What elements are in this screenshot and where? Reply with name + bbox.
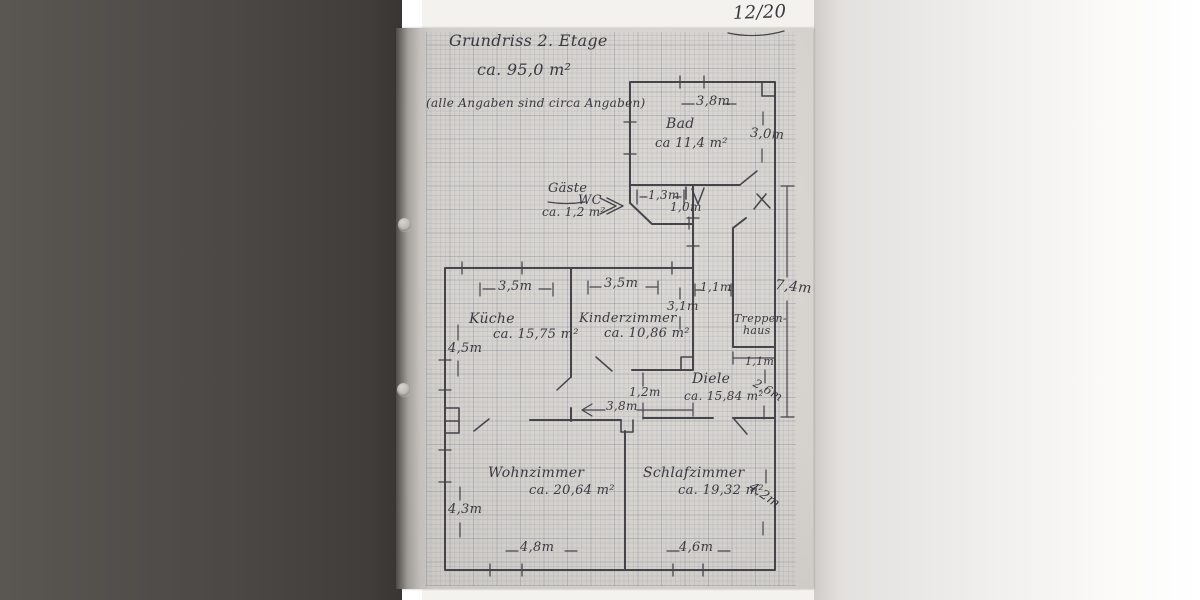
dim-diele-height: 1,2m	[629, 386, 661, 399]
photographed-floor-plan: 12/20 Grundriss 2. Etage ca. 95,0 m² (al…	[0, 0, 1200, 600]
dim-wohnzimmer-height: 4,3m	[448, 503, 482, 517]
plan-title: Grundriss 2. Etage	[449, 33, 608, 50]
room-area-kueche: ca. 15,75 m²	[493, 328, 579, 342]
room-area-kinderzimmer: ca. 10,86 m²	[604, 327, 690, 341]
room-label-schlafzimmer: Schlafzimmer	[643, 466, 744, 481]
floor-plan-drawing	[0, 0, 1200, 600]
dim-diele-width: 3,8m	[606, 400, 638, 413]
page-number: 12/20	[733, 3, 787, 24]
room-area-bad: ca 11,4 m²	[655, 137, 728, 151]
room-label-treppenhaus-line1: Treppen-	[734, 313, 787, 325]
room-label-wohnzimmer: Wohnzimmer	[488, 466, 584, 481]
room-label-diele: Diele	[692, 372, 730, 387]
dim-wohnzimmer-width: 4,8m	[520, 541, 554, 555]
room-label-bad: Bad	[666, 117, 695, 132]
dim-kinderzimmer-height: 3,1m	[667, 300, 699, 313]
plan-note: (alle Angaben sind circa Angaben)	[426, 97, 646, 110]
plan-total-area: ca. 95,0 m²	[477, 62, 571, 79]
dim-treppenhaus-width: 1,1m	[745, 356, 774, 368]
dim-bad-width: 3,8m	[696, 95, 730, 109]
room-label-kinderzimmer: Kinderzimmer	[579, 312, 677, 326]
room-area-wc: ca. 1,2 m²	[542, 206, 606, 219]
dim-kueche-width: 3,5m	[498, 280, 532, 294]
dim-corridor-width: 1,1m	[700, 281, 732, 294]
dim-kueche-height: 4,5m	[448, 342, 482, 356]
dim-wc-height: 1,0m	[670, 201, 702, 214]
page-number-underline	[728, 31, 784, 36]
dim-bad-height: 3,0m	[750, 127, 785, 143]
dim-kinderzimmer-width: 3,5m	[604, 277, 638, 291]
room-area-wohnzimmer: ca. 20,64 m²	[529, 484, 615, 498]
dim-schlafzimmer-width: 4,6m	[679, 541, 713, 555]
room-label-kueche: Küche	[469, 312, 515, 327]
room-area-diele: ca. 15,84 m²	[684, 390, 763, 403]
room-label-treppenhaus-line2: haus	[743, 325, 771, 337]
